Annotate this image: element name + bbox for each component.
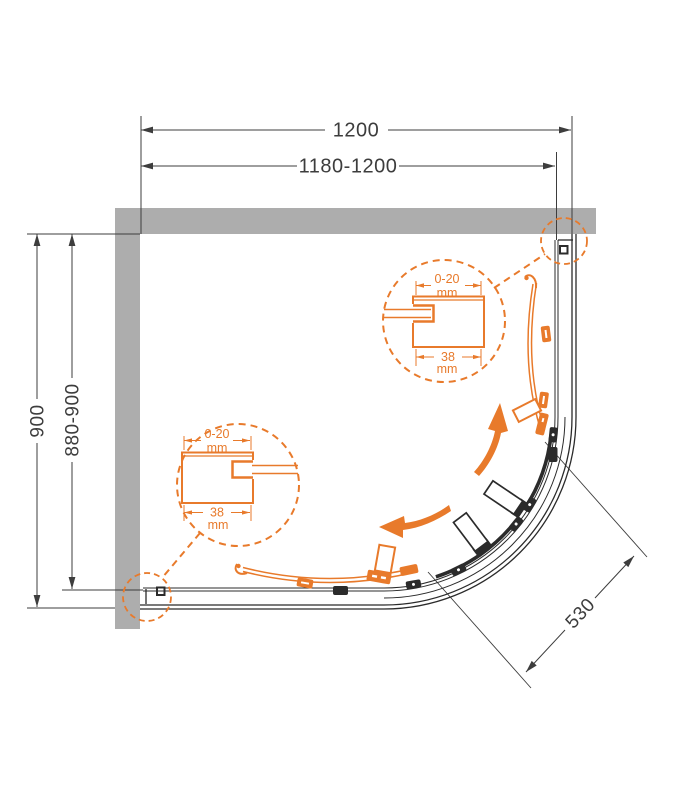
enclosure-frame [140,234,576,609]
sliding-doors-closed [405,427,557,590]
detail-adjust-unit: mm [207,441,228,455]
detail-circle [177,424,299,546]
technical-drawing-page: 1200 1180-1200 900 880-900 530 [0,0,686,800]
detail-adjust-value: 0-20 [434,272,459,286]
dim-width-total-label: 1200 [333,120,380,142]
door-1-handle [484,481,523,514]
door-motion-arrows [379,403,508,538]
wall-top [115,208,596,234]
dimension-depth-adjust: 880-900 [63,234,84,589]
dim-width-adjust-label: 1180-1200 [299,156,398,178]
dimension-width-adjust: 1180-1200 [141,156,555,178]
shower-enclosure-diagram: 1200 1180-1200 900 880-900 530 [0,0,686,800]
detail-width-unit: mm [208,518,229,532]
door-b-roller [296,577,313,589]
detail-width-unit: mm [437,362,458,376]
arrow-slide-up [474,403,508,476]
detail-adjust-value: 0-20 [204,427,229,441]
dim-depth-total-label: 900 [28,404,49,437]
dimension-depth-total: 900 [28,234,49,607]
roller [548,427,558,443]
dim-entry-width-label: 530 [562,594,600,633]
panel-end-bracket-bottom [333,586,348,595]
detail-leader [494,254,545,288]
detail-leader [162,533,200,578]
door-b-end-bracket [399,564,418,577]
door-2-handle [453,513,487,551]
door-a-roller [541,326,552,343]
dimension-entry-width: 530 [526,556,634,672]
dimension-width-total: 1200 [141,120,571,142]
detail-adjust-unit: mm [437,286,458,300]
detail-callout-top-right: 0-20 mm 38 mm [383,218,587,382]
wall-profile-top-right [560,246,568,254]
dim-depth-adjust-label: 880-900 [63,383,84,456]
wall-left [115,208,140,629]
arrow-slide-left [379,505,451,538]
door-b-handle [375,545,395,573]
roller [405,579,421,589]
